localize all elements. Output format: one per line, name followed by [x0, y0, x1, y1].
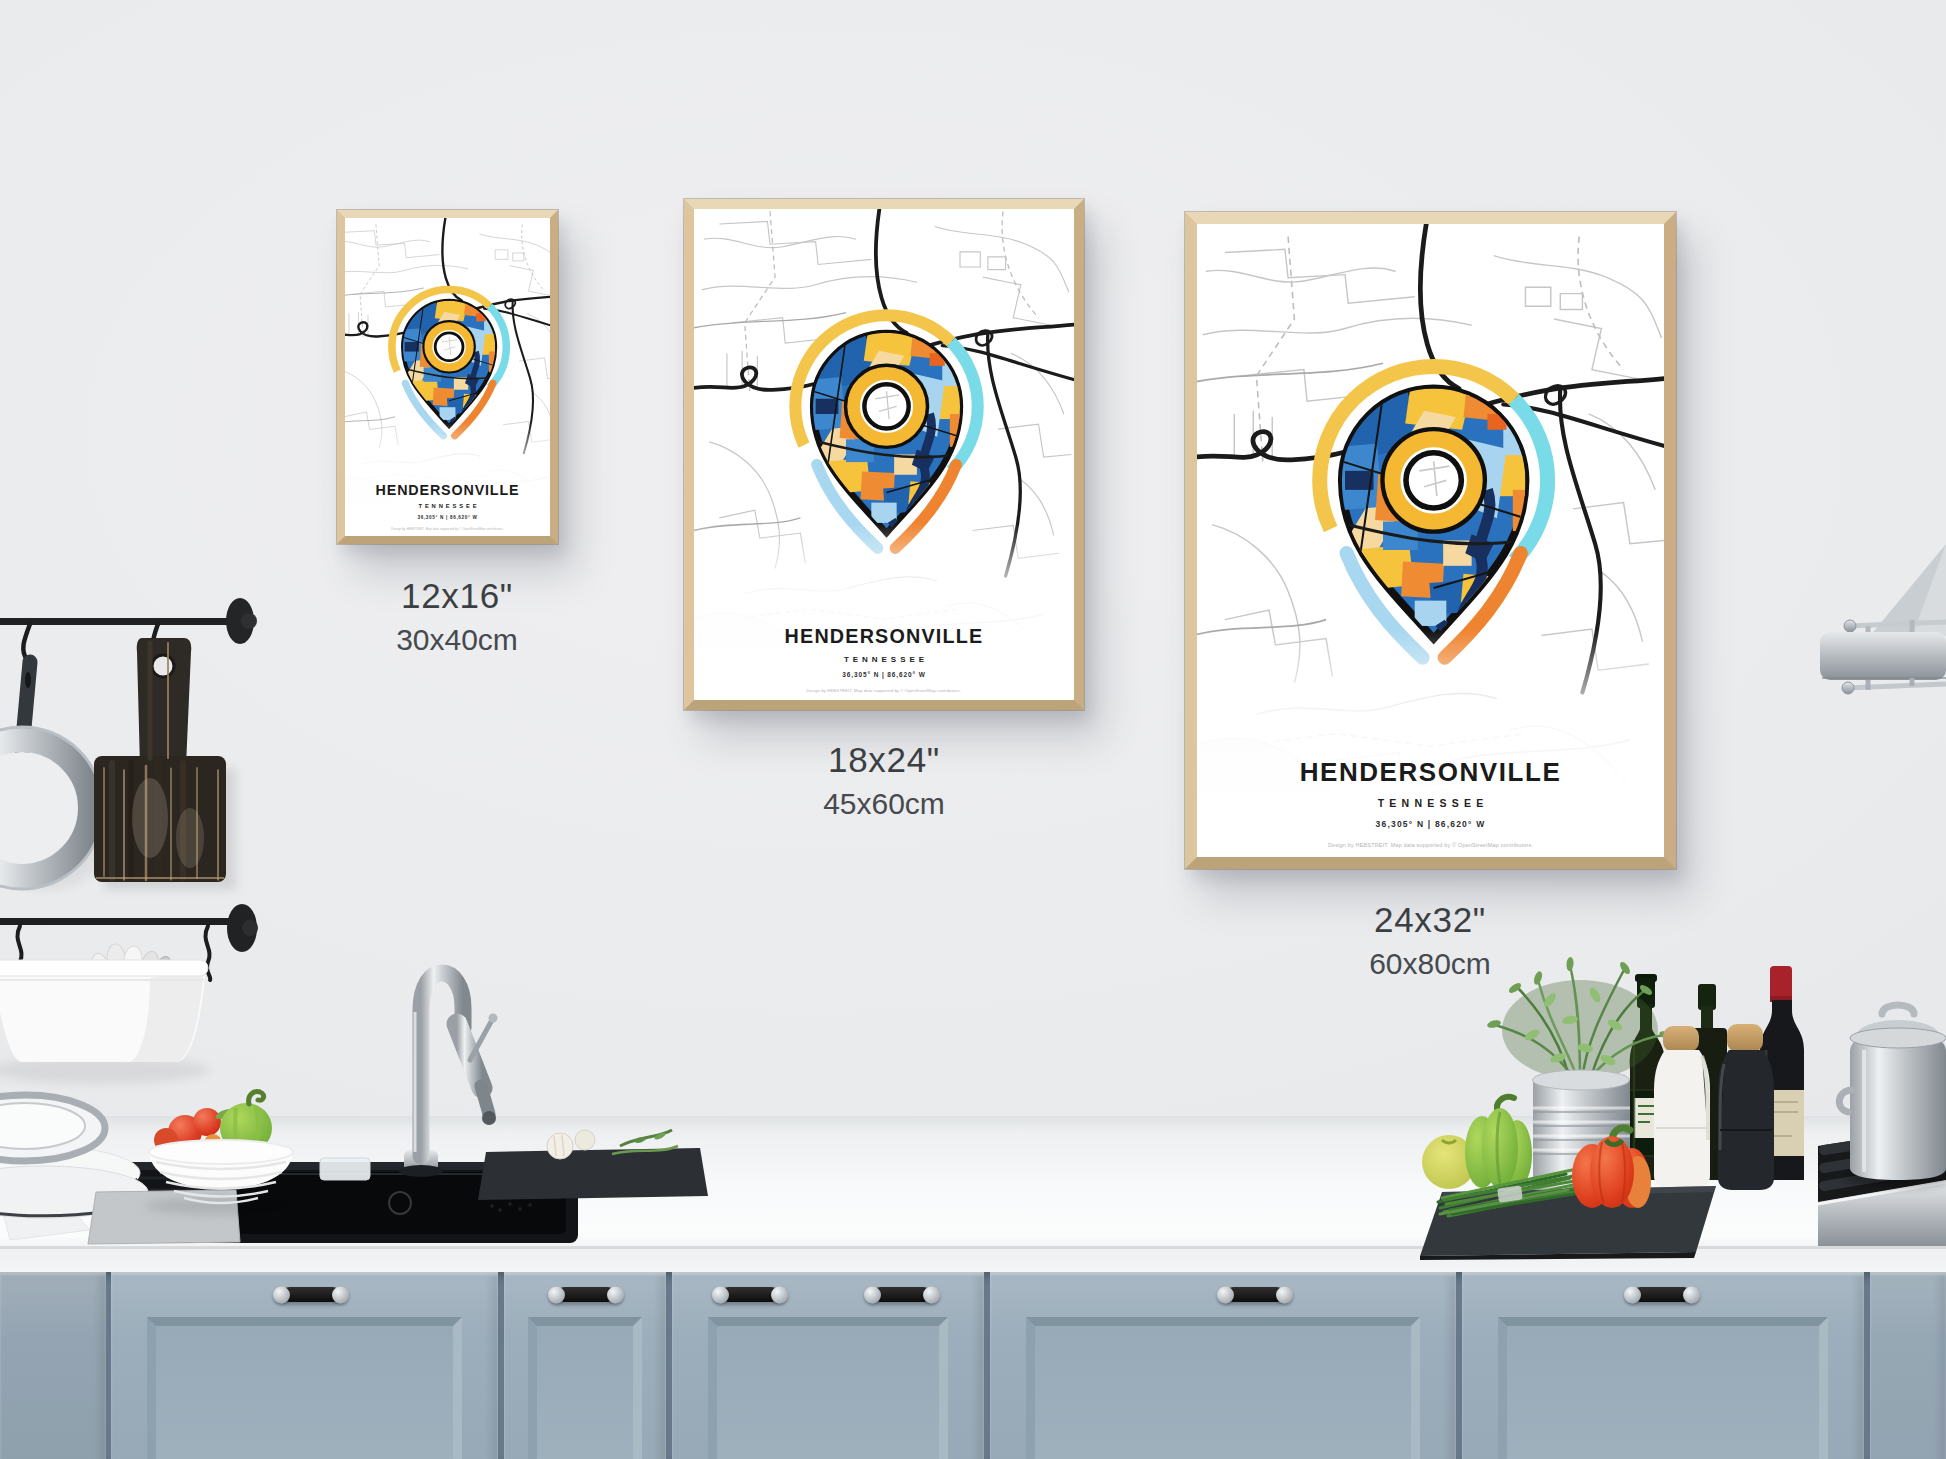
cabinet-panel [1026, 1317, 1420, 1459]
green-pepper [1465, 1097, 1532, 1188]
cabinet-door[interactable] [990, 1272, 1456, 1459]
poster-state: TENNESSEE [345, 503, 550, 509]
cabinet-door[interactable] [1462, 1272, 1864, 1459]
cabinet-row [0, 1272, 1946, 1459]
cabinet-panel [1498, 1317, 1828, 1459]
cabinet-door[interactable] [0, 1272, 106, 1459]
poster-print-area: HENDERSONVILLE TENNESSEE 36,305° N | 86,… [1197, 224, 1664, 857]
poster-title: HENDERSONVILLE [1197, 757, 1664, 788]
cabinet-panel [528, 1317, 642, 1459]
size-inches: 24x32" [1240, 900, 1620, 940]
cabinet-drawer[interactable] [504, 1272, 666, 1459]
cabinet-drawer-wide[interactable] [672, 1272, 984, 1459]
cabinet-handle[interactable] [721, 1287, 779, 1302]
cabinet-handle[interactable] [282, 1287, 340, 1302]
size-cm: 30x40cm [337, 623, 577, 657]
counter-props-right [1420, 940, 1946, 1260]
poster-credit: Design by HEBSTREIT. Map data supported … [345, 527, 550, 531]
size-label-18x24: 18x24" 45x60cm [694, 740, 1074, 821]
poster-12x16: HENDERSONVILLE TENNESSEE 36,305° N | 86,… [337, 210, 558, 544]
cabinet-handle[interactable] [1633, 1287, 1691, 1302]
poster-print-area: HENDERSONVILLE TENNESSEE 36,305° N | 86,… [345, 218, 550, 536]
poster-coordinates: 36,305° N | 86,620° W [1197, 819, 1664, 829]
poster-coordinates: 36,305° N | 86,620° W [694, 671, 1074, 678]
poster-credit: Design by HEBSTREIT. Map data supported … [694, 688, 1074, 693]
poster-18x24: HENDERSONVILLE TENNESSEE 36,305° N | 86,… [684, 199, 1084, 710]
soap-dish [320, 1158, 370, 1180]
poster-print-area: HENDERSONVILLE TENNESSEE 36,305° N | 86,… [694, 209, 1074, 700]
size-inches: 18x24" [694, 740, 1074, 780]
size-cm: 45x60cm [694, 787, 1074, 821]
faucet [399, 973, 498, 1177]
poster-24x32: HENDERSONVILLE TENNESSEE 36,305° N | 86,… [1185, 212, 1676, 869]
poster-state: TENNESSEE [694, 655, 1074, 664]
poster-coordinates: 36,305° N | 86,620° W [345, 515, 550, 520]
poster-title: HENDERSONVILLE [694, 625, 1074, 648]
cabinet-handle[interactable] [1226, 1287, 1284, 1302]
cabinet-panel [708, 1317, 948, 1459]
cabinet-door-sink[interactable] [111, 1272, 498, 1459]
poster-title: HENDERSONVILLE [345, 482, 550, 498]
poster-credit: Design by HEBSTREIT. Map data supported … [1197, 842, 1664, 848]
cabinet-panel [147, 1317, 462, 1459]
hanging-pan [0, 662, 103, 889]
kitchen-product-photo: HENDERSONVILLE TENNESSEE 36,305° N | 86,… [0, 0, 1946, 1459]
cabinet-handle[interactable] [873, 1287, 931, 1302]
size-label-12x16: 12x16" 30x40cm [337, 576, 577, 657]
poster-state: TENNESSEE [1197, 797, 1664, 809]
cabinet-door[interactable] [1870, 1272, 1946, 1459]
cutting-board [94, 638, 236, 890]
size-inches: 12x16" [337, 576, 577, 616]
stock-pot [1839, 1005, 1946, 1187]
range-hood [1812, 540, 1946, 715]
cabinet-handle[interactable] [557, 1287, 615, 1302]
sink-area [0, 900, 720, 1260]
